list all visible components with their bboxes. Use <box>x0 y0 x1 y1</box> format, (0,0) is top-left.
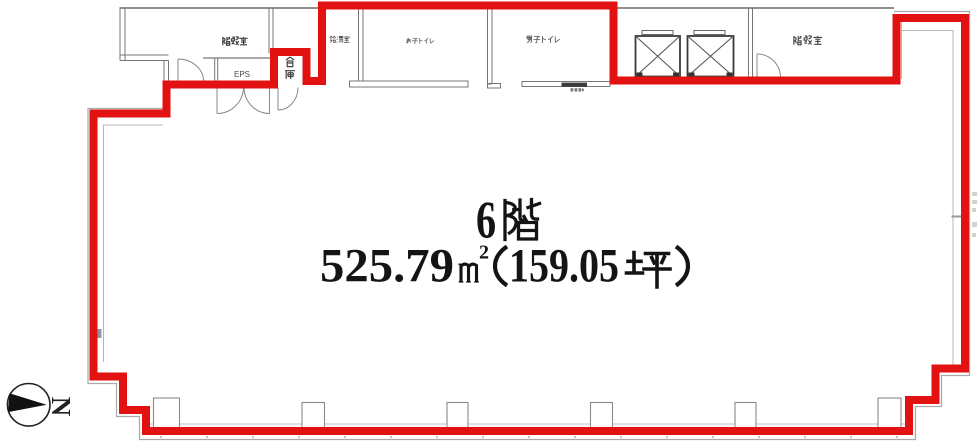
svg-text:2: 2 <box>479 242 489 264</box>
svg-text:525.79: 525.79 <box>320 240 454 293</box>
svg-text:N: N <box>46 397 76 417</box>
svg-text:159.05: 159.05 <box>509 240 619 293</box>
svg-text:EPS: EPS <box>234 70 250 79</box>
